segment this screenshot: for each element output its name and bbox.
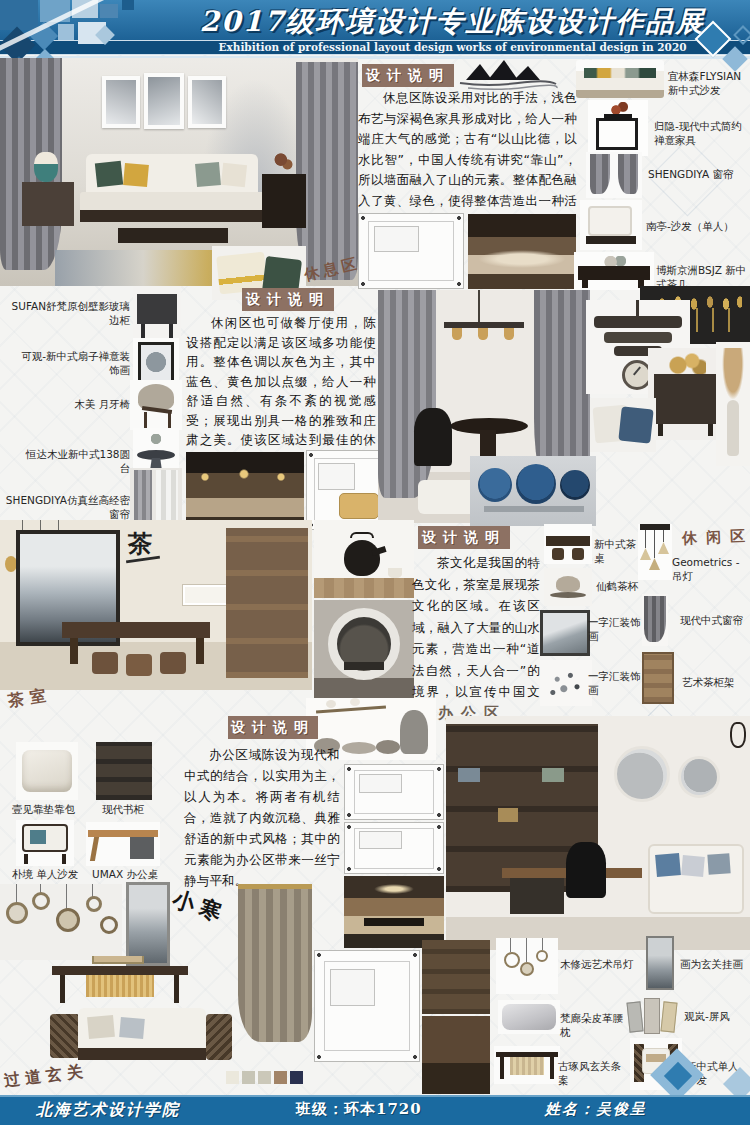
design-note-badge-office: 设计说明 bbox=[228, 716, 318, 739]
product-label: 壹见靠垫靠包 bbox=[12, 803, 84, 817]
buddha-statue bbox=[400, 710, 428, 754]
design-note-text-tea: 茶文化是我国的特色文化，茶室是展现茶文化的区域。在该区域，融入了大量的山水元素，… bbox=[412, 552, 540, 712]
photo-cabinet-detail bbox=[422, 1016, 490, 1094]
product-thumb-ring-lamp bbox=[496, 938, 558, 994]
product-label: 恒达木业新中式138圆台 bbox=[22, 448, 130, 475]
product-thumb-sideboard bbox=[133, 286, 181, 344]
floor-plan-thumbnail bbox=[314, 950, 420, 1062]
product-thumb-bookcase bbox=[96, 742, 152, 800]
product-thumb-entry-console bbox=[494, 1046, 560, 1084]
table-lamp-teal bbox=[34, 152, 58, 182]
photo-kettle-still-life bbox=[314, 520, 414, 598]
product-thumb-entry-painting bbox=[646, 936, 674, 990]
product-thumb-leather-pillow bbox=[498, 1000, 560, 1034]
product-thumb-tea-shelf bbox=[642, 652, 674, 704]
swatch bbox=[258, 1071, 271, 1084]
photo-moon-gate bbox=[314, 600, 414, 700]
side-table-left bbox=[22, 182, 74, 226]
side-table-right bbox=[262, 174, 306, 228]
product-label: Geometrics - 吊灯 bbox=[672, 556, 748, 583]
product-thumb-moon-chair bbox=[130, 380, 182, 430]
product-label: 可观-新中式扇子禅意装饰画 bbox=[18, 350, 130, 377]
photo-blue-plates bbox=[470, 456, 596, 526]
kettle bbox=[344, 540, 380, 576]
product-label: 木美 月牙椅 bbox=[58, 398, 130, 412]
design-note-text-rest: 休息区陈设采用对比的手法，浅色布艺与深褐色家具形成对比，给人一种端庄大气的感觉；… bbox=[358, 88, 577, 212]
sofa-pillow-yellow bbox=[123, 163, 149, 187]
curtain-left bbox=[378, 290, 436, 498]
design-note-badge-rest: 设计说明 bbox=[362, 64, 454, 87]
product-label: UMAX 办公桌 bbox=[92, 868, 168, 882]
photo-hall-curtain bbox=[238, 884, 312, 1042]
material-swatches bbox=[226, 1071, 310, 1085]
product-thumb-armchair bbox=[580, 200, 642, 250]
photo-meeting-room bbox=[344, 876, 444, 948]
design-note-text-office: 办公区域陈设为现代和中式的结合，以实用为主，以人为本。将两者有机结合，造就了内敛… bbox=[184, 744, 340, 894]
photo-tea-room: 茶 bbox=[0, 520, 312, 690]
design-note-badge-leisure: 设计说明 bbox=[242, 288, 334, 311]
swatch bbox=[290, 1071, 303, 1084]
round-wall-art bbox=[614, 746, 670, 802]
product-thumb-curtains bbox=[586, 152, 642, 198]
footer-class: 班级：环本1720 bbox=[296, 1100, 422, 1119]
photo-restaurant-interior bbox=[186, 452, 304, 528]
mountain-motif-icon bbox=[458, 56, 558, 92]
product-thumb-tea-table bbox=[574, 252, 654, 290]
wall-art-frame bbox=[144, 73, 184, 129]
zone-label-hallway: 过道玄关 bbox=[3, 1061, 89, 1092]
coffee-table bbox=[118, 228, 228, 243]
photo-console-table bbox=[52, 956, 188, 1006]
swatch bbox=[242, 1071, 255, 1084]
product-label: 古琢风玄关条案 bbox=[558, 1060, 628, 1087]
sofa-pillow-gray bbox=[195, 162, 221, 187]
product-label: 南亭-沙发（单人） bbox=[646, 220, 746, 234]
photo-ring-pendants bbox=[0, 884, 122, 960]
photo-dark-dresser bbox=[648, 348, 724, 440]
tea-calligraphy-glyph: 茶 bbox=[128, 528, 152, 560]
photo-office-area bbox=[446, 716, 750, 950]
swatch bbox=[274, 1071, 287, 1084]
zone-label-leisure: 休闲区 bbox=[682, 527, 750, 549]
wall-art-frame bbox=[102, 76, 140, 128]
floor-plan-thumbnail bbox=[358, 213, 464, 289]
product-thumb-single-curtain bbox=[642, 594, 668, 646]
product-thumb-office-desk bbox=[86, 822, 160, 866]
product-label: 宜林森FLYSIAN 新中式沙发 bbox=[668, 70, 748, 97]
round-wall-art bbox=[678, 756, 720, 798]
wall-art-frame bbox=[188, 76, 226, 128]
product-thumb-sheer-curtain bbox=[130, 468, 182, 528]
footer-school-name: 北海艺术设计学院 bbox=[36, 1100, 180, 1121]
product-label: 一字汇装饰画 bbox=[588, 616, 642, 643]
product-thumb-misty-painting bbox=[540, 610, 590, 656]
sofa-pillow-green bbox=[95, 161, 123, 188]
photo-tall-painting bbox=[126, 882, 170, 966]
photo-blue-pillows bbox=[590, 398, 656, 452]
tea-table bbox=[62, 622, 210, 638]
photo-cabinet-detail bbox=[422, 940, 490, 1014]
pendant-light bbox=[478, 290, 480, 322]
product-label: SUFAN舒梵原创壁影玻璃边柜 bbox=[4, 300, 130, 327]
product-thumb-console bbox=[588, 100, 648, 156]
product-thumb-folding-screens bbox=[626, 996, 680, 1036]
sofa-pillow-white bbox=[221, 163, 247, 187]
tea-stool bbox=[126, 654, 152, 676]
product-label: 一字汇装饰画 bbox=[588, 670, 642, 697]
floor-plan-thumbnail bbox=[344, 764, 444, 820]
lantern-pendant bbox=[730, 722, 746, 748]
product-thumb-cushion bbox=[16, 742, 78, 800]
floor-plan-thumbnail bbox=[344, 822, 444, 874]
product-label: 画为玄关挂画 bbox=[680, 958, 748, 972]
product-label: 梵廊朵皮革腰枕 bbox=[560, 1012, 626, 1039]
product-label: 现代中式窗帘 bbox=[680, 614, 748, 628]
product-label: 现代书柜 bbox=[102, 803, 152, 817]
sofa-base bbox=[80, 210, 266, 222]
office-chair bbox=[566, 842, 606, 898]
design-note-badge-tea: 设计说明 bbox=[418, 526, 510, 549]
product-label: 归隐-现代中式简约禅意家具 bbox=[654, 120, 748, 147]
photo-lounge-interior bbox=[468, 214, 576, 289]
poster-title: 2017级环境设计专业陈设设计作品展 bbox=[185, 3, 720, 41]
sofa-seat bbox=[80, 192, 266, 212]
product-thumb-pendant-trio bbox=[638, 524, 672, 580]
photo-hall-sofa bbox=[50, 1008, 232, 1066]
tea-stool bbox=[92, 652, 118, 674]
photo-pampas-vase bbox=[716, 342, 750, 466]
swatch bbox=[226, 1071, 239, 1084]
poster-subtitle: Exhibition of professional layout design… bbox=[185, 41, 720, 53]
product-label: 新中式茶桌 bbox=[594, 538, 640, 565]
product-label: SHENGDIYA仿真丝高经密窗帘 bbox=[2, 494, 130, 521]
design-note-text-leisure: 休闲区也可做餐厅使用，陈设搭配定以满足该区域多功能使用。整体色调以灰色为主，其中… bbox=[186, 313, 376, 451]
product-label: 观岚-屏风 bbox=[684, 1010, 744, 1024]
tea-stool bbox=[160, 652, 186, 674]
product-label: 仙鹤茶杯 bbox=[596, 580, 642, 594]
bonsai bbox=[272, 150, 294, 174]
footer-name: 姓名：吴俊呈 bbox=[545, 1100, 647, 1119]
poster: 2017级环境设计专业陈设设计作品展 Exhibition of profess… bbox=[0, 0, 750, 1125]
black-chair bbox=[414, 408, 452, 466]
product-label: SHENGDIYA 窗帘 bbox=[648, 168, 744, 182]
product-thumb-lounge-chair bbox=[16, 820, 74, 866]
product-thumb-gaiwan bbox=[544, 568, 592, 606]
product-thumb-splatter-art bbox=[540, 660, 592, 706]
product-label: 木修远艺术吊灯 bbox=[560, 958, 634, 972]
product-thumb-sofa bbox=[576, 60, 664, 98]
wooden-shelf bbox=[226, 528, 308, 678]
product-label: 艺术茶柜架 bbox=[682, 676, 746, 690]
tea-cup bbox=[388, 568, 402, 578]
product-label: 朴境 单人沙发 bbox=[12, 868, 92, 882]
product-thumb-tea-desk bbox=[544, 524, 592, 564]
